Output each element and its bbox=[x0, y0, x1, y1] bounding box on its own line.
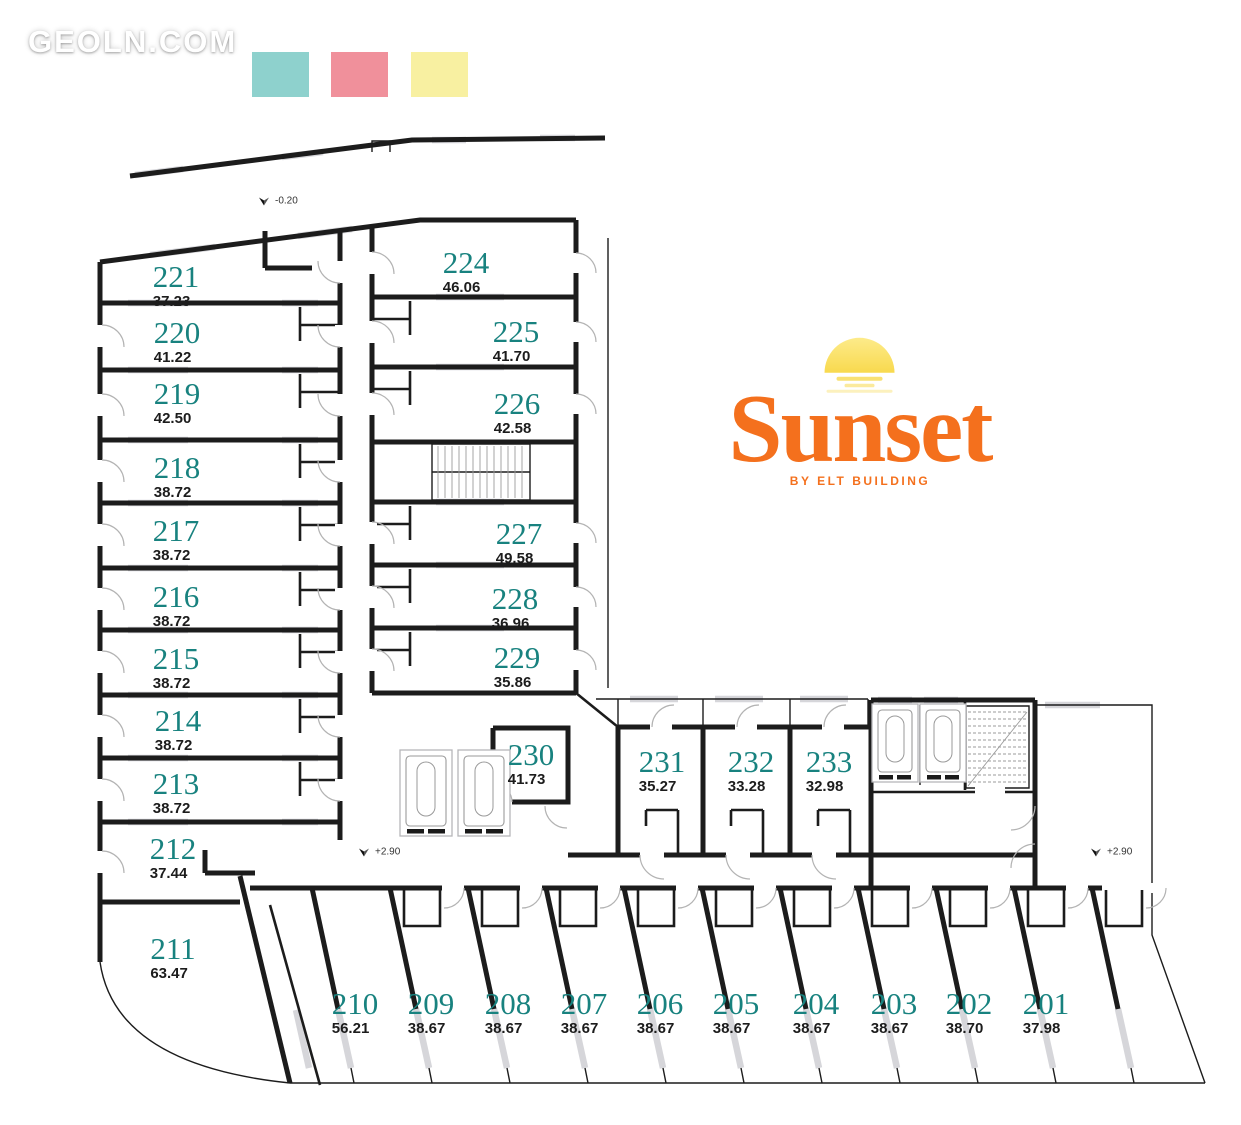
room-number: 211 bbox=[150, 933, 195, 964]
room-number: 220 bbox=[154, 317, 201, 348]
room-225-label: 22541.70 bbox=[493, 316, 540, 364]
room-area: 38.72 bbox=[155, 738, 202, 753]
room-area: 32.98 bbox=[806, 779, 853, 794]
room-number: 205 bbox=[713, 988, 760, 1019]
room-area: 36.96 bbox=[492, 616, 539, 631]
elevation-mark-0: -0.20 bbox=[258, 196, 298, 207]
room-number: 230 bbox=[508, 739, 555, 770]
room-number: 217 bbox=[153, 515, 200, 546]
room-228-label: 22836.96 bbox=[492, 583, 539, 631]
room-number: 210 bbox=[332, 988, 379, 1019]
level-mark-icon bbox=[258, 196, 270, 207]
room-number: 215 bbox=[153, 643, 200, 674]
room-area: 35.27 bbox=[639, 779, 686, 794]
room-area: 35.86 bbox=[494, 675, 541, 690]
room-220-label: 22041.22 bbox=[154, 317, 201, 365]
room-number: 203 bbox=[871, 988, 918, 1019]
room-number: 231 bbox=[639, 746, 686, 777]
room-area: 38.67 bbox=[561, 1021, 608, 1036]
room-area: 49.58 bbox=[496, 551, 543, 566]
elevation-value: -0.20 bbox=[275, 196, 298, 207]
logo-tagline: BY ELT BUILDING bbox=[790, 474, 930, 488]
room-number: 228 bbox=[492, 583, 539, 614]
room-area: 38.72 bbox=[153, 801, 200, 816]
room-area: 41.73 bbox=[508, 772, 555, 787]
room-217-label: 21738.72 bbox=[153, 515, 200, 563]
elevator-icon bbox=[920, 704, 966, 782]
room-number: 218 bbox=[154, 452, 201, 483]
walls-thick bbox=[100, 138, 1118, 1083]
room-area: 38.72 bbox=[154, 485, 201, 500]
yellow-swatch bbox=[411, 52, 468, 97]
walls-thin bbox=[100, 141, 1205, 1083]
room-area: 37.98 bbox=[1023, 1021, 1070, 1036]
elevation-mark-1: +2.90 bbox=[358, 847, 400, 858]
window-segments bbox=[128, 138, 1131, 1068]
elevation-value: +2.90 bbox=[1107, 847, 1132, 858]
sunset-logo: Sunset BY ELT BUILDING bbox=[729, 336, 992, 488]
room-area: 37.44 bbox=[150, 866, 197, 881]
room-area: 41.70 bbox=[493, 349, 540, 364]
level-mark-icon bbox=[1090, 847, 1102, 858]
door-arcs bbox=[102, 252, 1166, 908]
room-number: 204 bbox=[793, 988, 840, 1019]
room-212-label: 21237.44 bbox=[150, 833, 197, 881]
room-number: 221 bbox=[153, 261, 200, 292]
room-number: 216 bbox=[153, 581, 200, 612]
room-230-label: 23041.73 bbox=[508, 739, 555, 787]
room-210-label: 21056.21 bbox=[332, 988, 379, 1036]
floorplan-page: GEOLN.COM Sunset BY ELT BUILDING 22137.2… bbox=[0, 0, 1241, 1125]
room-206-label: 20638.67 bbox=[637, 988, 684, 1036]
room-area: 37.23 bbox=[153, 294, 200, 309]
elevator-icon bbox=[400, 750, 452, 836]
room-number: 202 bbox=[946, 988, 993, 1019]
room-227-label: 22749.58 bbox=[496, 518, 543, 566]
room-area: 38.70 bbox=[946, 1021, 993, 1036]
room-area: 38.67 bbox=[713, 1021, 760, 1036]
room-area: 41.22 bbox=[154, 350, 201, 365]
room-area: 42.58 bbox=[494, 421, 541, 436]
room-area: 56.21 bbox=[332, 1021, 379, 1036]
room-area: 38.72 bbox=[153, 548, 200, 563]
room-221-label: 22137.23 bbox=[153, 261, 200, 309]
room-209-label: 20938.67 bbox=[408, 988, 455, 1036]
room-219-label: 21942.50 bbox=[154, 378, 201, 426]
room-number: 233 bbox=[806, 746, 853, 777]
logo-title: Sunset bbox=[729, 388, 992, 470]
room-215-label: 21538.72 bbox=[153, 643, 200, 691]
room-211-label: 21163.47 bbox=[150, 933, 195, 981]
elevator-icon bbox=[872, 704, 918, 782]
pink-swatch bbox=[331, 52, 388, 97]
room-area: 38.67 bbox=[793, 1021, 840, 1036]
room-number: 219 bbox=[154, 378, 201, 409]
room-201-label: 20137.98 bbox=[1023, 988, 1070, 1036]
door-openings bbox=[95, 252, 1166, 893]
room-203-label: 20338.67 bbox=[871, 988, 918, 1036]
room-number: 226 bbox=[494, 388, 541, 419]
room-number: 206 bbox=[637, 988, 684, 1019]
room-number: 207 bbox=[561, 988, 608, 1019]
room-204-label: 20438.67 bbox=[793, 988, 840, 1036]
room-number: 232 bbox=[728, 746, 775, 777]
room-231-label: 23135.27 bbox=[639, 746, 686, 794]
elevator-icon bbox=[458, 750, 510, 836]
room-area: 38.67 bbox=[637, 1021, 684, 1036]
room-number: 209 bbox=[408, 988, 455, 1019]
room-224-label: 22446.06 bbox=[443, 247, 490, 295]
room-area: 46.06 bbox=[443, 280, 490, 295]
room-area: 33.28 bbox=[728, 779, 775, 794]
room-214-label: 21438.72 bbox=[155, 705, 202, 753]
elevation-value: +2.90 bbox=[375, 847, 400, 858]
room-226-label: 22642.58 bbox=[494, 388, 541, 436]
room-233-label: 23332.98 bbox=[806, 746, 853, 794]
room-area: 42.50 bbox=[154, 411, 201, 426]
room-number: 225 bbox=[493, 316, 540, 347]
room-205-label: 20538.67 bbox=[713, 988, 760, 1036]
room-area: 38.72 bbox=[153, 614, 200, 629]
room-207-label: 20738.67 bbox=[561, 988, 608, 1036]
room-area: 63.47 bbox=[150, 966, 195, 981]
level-mark-icon bbox=[358, 847, 370, 858]
geoln-watermark: GEOLN.COM bbox=[28, 24, 237, 60]
room-number: 229 bbox=[494, 642, 541, 673]
room-area: 38.67 bbox=[408, 1021, 455, 1036]
room-number: 214 bbox=[155, 705, 202, 736]
room-229-label: 22935.86 bbox=[494, 642, 541, 690]
room-216-label: 21638.72 bbox=[153, 581, 200, 629]
room-area: 38.67 bbox=[485, 1021, 532, 1036]
room-232-label: 23233.28 bbox=[728, 746, 775, 794]
room-number: 213 bbox=[153, 768, 200, 799]
room-number: 201 bbox=[1023, 988, 1070, 1019]
room-202-label: 20238.70 bbox=[946, 988, 993, 1036]
room-area: 38.67 bbox=[871, 1021, 918, 1036]
room-208-label: 20838.67 bbox=[485, 988, 532, 1036]
room-number: 224 bbox=[443, 247, 490, 278]
room-number: 208 bbox=[485, 988, 532, 1019]
room-218-label: 21838.72 bbox=[154, 452, 201, 500]
room-number: 212 bbox=[150, 833, 197, 864]
room-area: 38.72 bbox=[153, 676, 200, 691]
teal-swatch bbox=[252, 52, 309, 97]
room-number: 227 bbox=[496, 518, 543, 549]
elevation-mark-2: +2.90 bbox=[1090, 847, 1132, 858]
room-213-label: 21338.72 bbox=[153, 768, 200, 816]
